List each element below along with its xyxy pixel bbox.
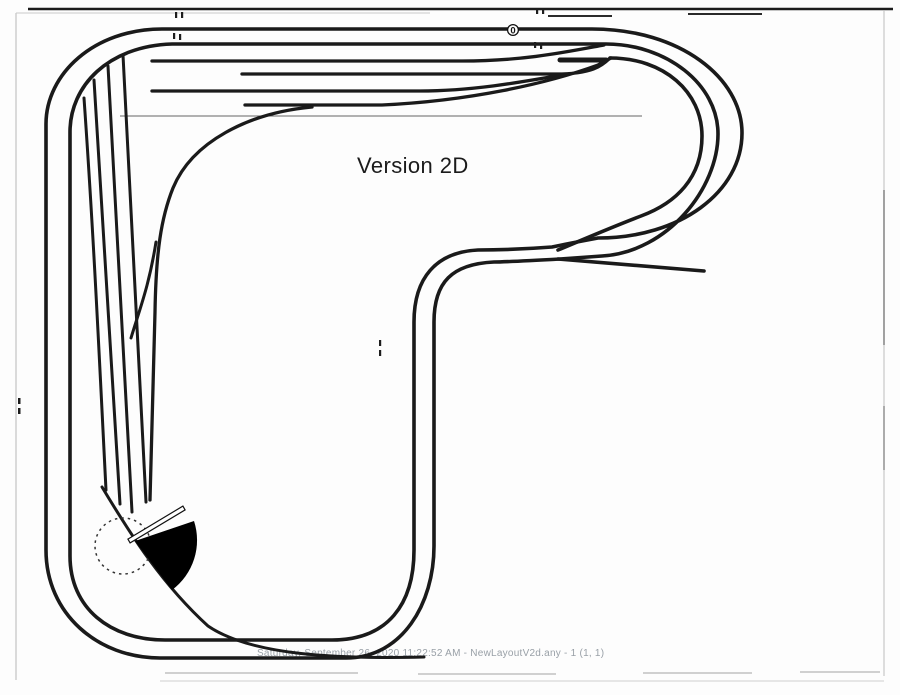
section-marker: [379, 350, 381, 356]
section-marker: [534, 42, 536, 48]
yard-lead-sweep: [150, 107, 312, 500]
section-marker: [18, 408, 21, 414]
section-marker: [379, 340, 381, 346]
engine-terminal-fan: [84, 55, 424, 657]
section-marker: [542, 8, 544, 14]
stub-track-right: [558, 259, 704, 271]
section-markers: [18, 8, 544, 414]
turntable: [95, 506, 197, 590]
track-plan-drawing: 0: [0, 0, 900, 695]
fan-track-1: [84, 98, 106, 490]
section-marker: [175, 12, 177, 18]
scanned-track-plan-page: Version 2D Saturday, September 26, 2020 …: [0, 0, 900, 695]
yard-track-4: [245, 58, 611, 105]
section-marker: [540, 43, 542, 49]
section-marker: [18, 398, 21, 404]
yard-track-3: [152, 75, 562, 91]
section-marker: [173, 33, 175, 39]
section-marker: [179, 34, 181, 40]
origin-marker: 0: [508, 25, 519, 37]
fan-track-2: [94, 80, 120, 504]
scan-page-border: [16, 9, 893, 681]
section-marker: [181, 12, 183, 18]
section-marker: [536, 8, 538, 14]
scan-bottom-artifacts: [165, 672, 880, 674]
origin-marker-label: 0: [510, 26, 515, 37]
yard-tracks: [150, 45, 611, 500]
